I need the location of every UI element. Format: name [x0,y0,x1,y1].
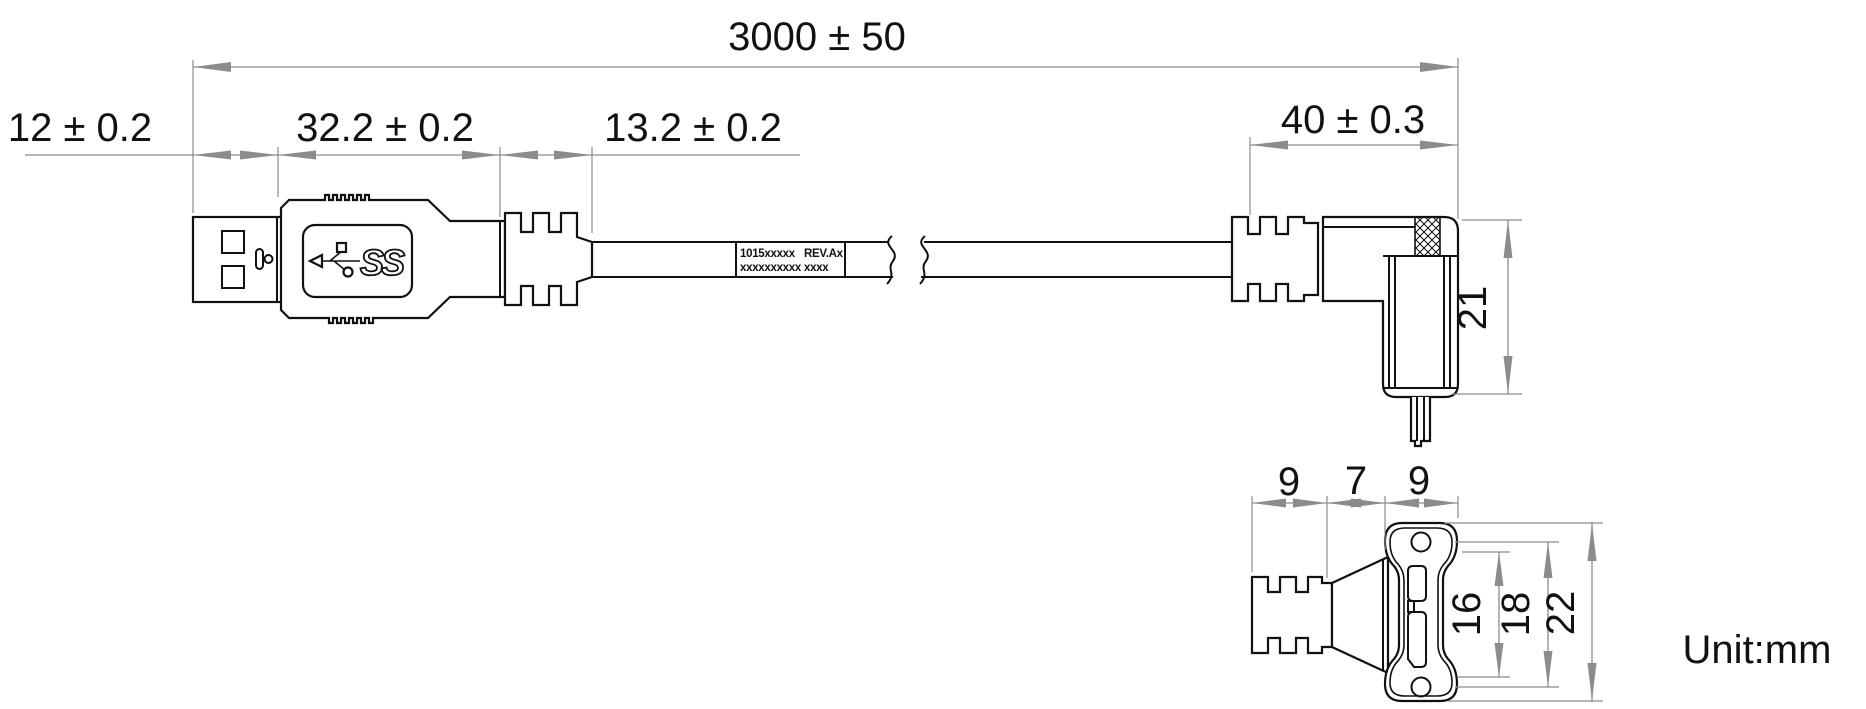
cable-label-line1-left: 1015xxxxx [740,248,796,260]
dim-neck-width-text: 7 [1345,459,1367,503]
unit-note: Unit:mm [1683,628,1832,672]
usb-a-shell [193,217,283,302]
right-connector-strain-relief [1232,217,1318,301]
cable-label-line2-left: xxxxxxxxxx [740,262,802,274]
dim-connector-height: 21 [1451,220,1522,394]
dim-body-length-text: 32.2 ± 0.2 [296,106,474,150]
bottom-view [1252,523,1457,701]
drawing-canvas: SS 1015xxxxx REV.Ax xxxxxxxxxx xxxx [0,0,1866,709]
dim-connector-height-text: 21 [1451,286,1495,331]
bottom-taper-body [1332,557,1388,673]
dim-boot-length-text: 13.2 ± 0.2 [604,106,782,150]
cable-label: 1015xxxxx REV.Ax xxxxxxxxxx xxxx [736,243,845,276]
cable-label-line1-right: REV.Ax [804,248,844,260]
cable: 1015xxxxx REV.Ax xxxxxxxxxx xxxx [592,236,1232,284]
dim-connector-length: 40 ± 0.3 [1250,98,1458,215]
usb-a-strain-relief [505,213,592,305]
usb-cable-technical-drawing: SS 1015xxxxx REV.Ax xxxxxxxxxx xxxx [0,0,1866,709]
dim-hole-pitch-text: 18 [1494,592,1538,637]
dim-connector-length-text: 40 ± 0.3 [1281,98,1425,142]
bottom-strain-relief [1252,577,1332,653]
dim-hole-inner-span-text: 16 [1445,592,1489,637]
usb-ss-text: SS [360,242,405,283]
dim-shell-length-text: 12 ± 0.2 [8,106,152,150]
dim-flange-width-text: 9 [1408,459,1430,503]
right-angle-connector [1232,217,1458,446]
dim-flange-height-text: 22 [1539,591,1583,636]
usb-a-plug: SS [193,195,592,323]
dim-flange-stack: 16 18 22 [1444,523,1603,701]
dim-overall-length-text: 3000 ± 50 [728,15,906,59]
micro-b-plug-tip [1411,397,1430,446]
cable-label-line2-right: xxxx [804,262,829,274]
knurl-band [1415,217,1440,256]
dim-boot-width-text: 9 [1278,460,1300,504]
